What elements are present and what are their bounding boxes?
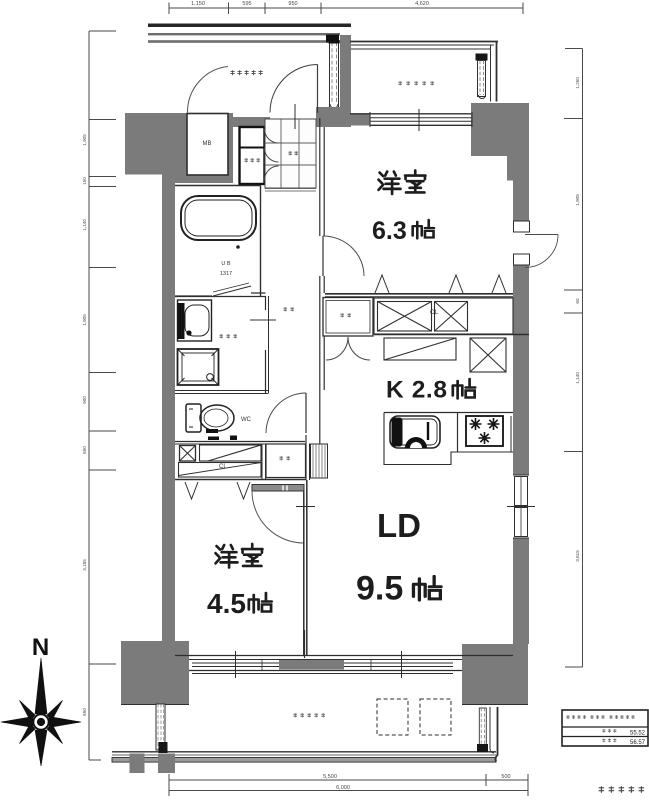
svg-text:1,150: 1,150 bbox=[191, 1, 205, 7]
svg-text:6,000: 6,000 bbox=[336, 785, 350, 791]
svg-text:650: 650 bbox=[82, 446, 87, 454]
svg-text:CL: CL bbox=[219, 464, 227, 470]
svg-text:55.52: 55.52 bbox=[630, 731, 646, 737]
svg-text:1,140: 1,140 bbox=[575, 372, 580, 384]
svg-text:9.5: 9.5 bbox=[356, 570, 403, 608]
svg-text:1,140: 1,140 bbox=[82, 219, 87, 231]
svg-text:6.3: 6.3 bbox=[372, 217, 407, 245]
svg-text:56.57: 56.57 bbox=[630, 740, 646, 746]
svg-text:4.5: 4.5 bbox=[207, 588, 246, 619]
svg-text:K 2.8: K 2.8 bbox=[386, 377, 448, 404]
svg-text:U B: U B bbox=[221, 261, 231, 267]
svg-text:1317: 1317 bbox=[220, 271, 232, 277]
svg-text:3,615: 3,615 bbox=[575, 550, 580, 562]
svg-text:900: 900 bbox=[82, 396, 87, 404]
svg-text:5,500: 5,500 bbox=[323, 774, 337, 780]
svg-text:3,185: 3,185 bbox=[82, 559, 87, 571]
svg-text:4,620: 4,620 bbox=[415, 1, 429, 7]
svg-text:CL: CL bbox=[430, 309, 439, 316]
svg-text:60: 60 bbox=[575, 298, 580, 304]
svg-text:WC: WC bbox=[241, 417, 252, 423]
svg-text:1,905: 1,905 bbox=[82, 314, 87, 326]
svg-text:1,905: 1,905 bbox=[82, 134, 87, 146]
svg-text:500: 500 bbox=[501, 774, 510, 780]
svg-text:MB: MB bbox=[203, 141, 212, 147]
svg-text:950: 950 bbox=[288, 1, 297, 7]
svg-text:LD: LD bbox=[377, 507, 421, 544]
svg-text:595: 595 bbox=[242, 1, 251, 7]
svg-text:150: 150 bbox=[82, 177, 87, 185]
svg-text:N: N bbox=[32, 634, 49, 661]
svg-text:1,905: 1,905 bbox=[575, 194, 580, 206]
svg-text:650: 650 bbox=[82, 708, 87, 716]
svg-text:1,260: 1,260 bbox=[575, 77, 580, 89]
